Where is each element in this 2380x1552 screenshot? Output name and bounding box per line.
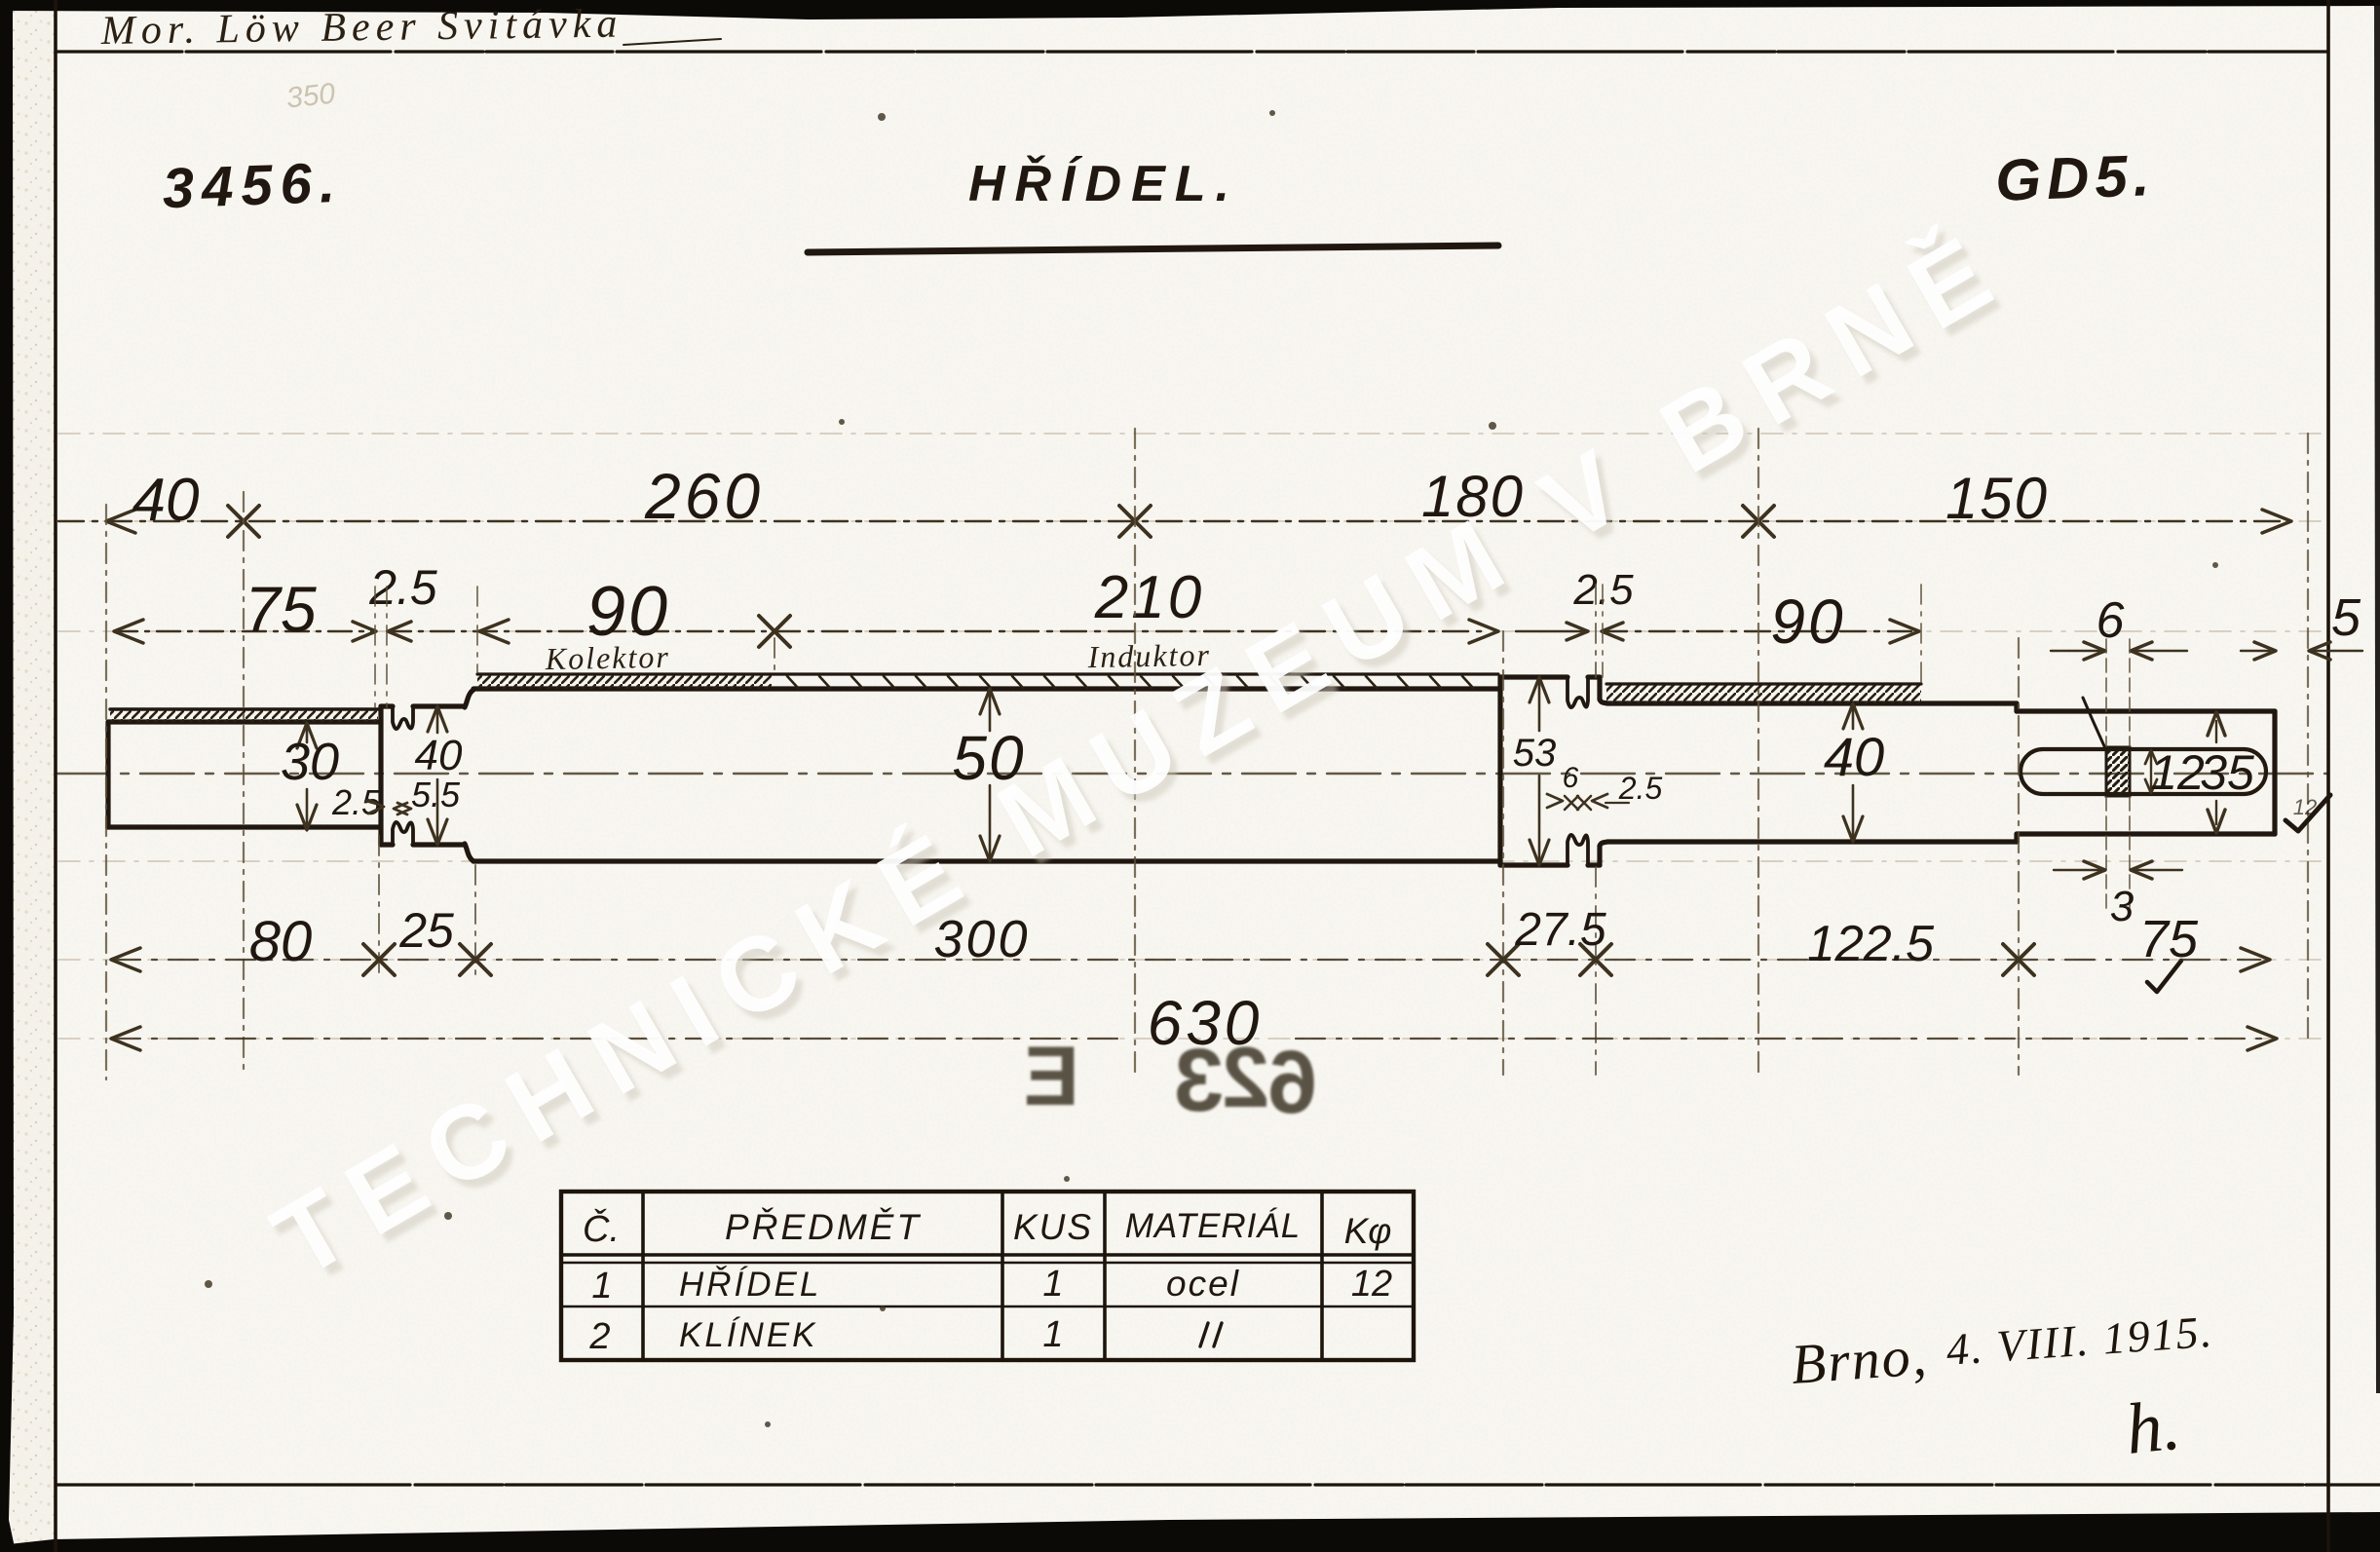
svg-text:30: 30	[281, 733, 339, 791]
svg-text:ocel: ocel	[1166, 1264, 1240, 1304]
svg-text:E: E	[1024, 1030, 1079, 1123]
svg-text:MATERIÁL: MATERIÁL	[1125, 1207, 1301, 1245]
svg-text:40: 40	[1824, 726, 1884, 787]
svg-text:1: 1	[1042, 1264, 1063, 1305]
svg-text:HŘÍDEL: HŘÍDEL	[679, 1266, 821, 1304]
svg-text:6: 6	[2097, 592, 2125, 649]
svg-text:2: 2	[588, 1316, 610, 1357]
svg-text:2.5: 2.5	[1618, 771, 1663, 806]
svg-text:40: 40	[415, 732, 463, 779]
svg-text:122.5: 122.5	[1807, 916, 1935, 972]
svg-text:1: 1	[591, 1266, 612, 1306]
svg-text:6: 6	[1563, 762, 1579, 794]
svg-text:80: 80	[249, 910, 313, 973]
svg-text:h.: h.	[2122, 1385, 2184, 1470]
svg-text:Kolektor: Kolektor	[545, 639, 671, 676]
svg-text:Kφ: Kφ	[1344, 1211, 1392, 1251]
svg-text:5: 5	[2331, 588, 2361, 647]
svg-text:3456.: 3456.	[162, 151, 344, 220]
svg-text:27.5: 27.5	[1514, 904, 1606, 956]
svg-text:40: 40	[132, 467, 200, 534]
svg-text:12: 12	[2150, 745, 2205, 800]
svg-text:1: 1	[1042, 1314, 1063, 1355]
svg-text:Č.: Č.	[583, 1207, 620, 1250]
svg-text:HŘÍDEL.: HŘÍDEL.	[968, 155, 1239, 212]
svg-text:53: 53	[1513, 732, 1557, 775]
svg-text:350: 350	[284, 77, 337, 114]
svg-text:75: 75	[2139, 910, 2199, 968]
svg-text:KLÍNEK: KLÍNEK	[679, 1316, 818, 1354]
svg-text:12: 12	[1351, 1264, 1392, 1305]
svg-text:260: 260	[644, 460, 764, 532]
svg-text:GD5.: GD5.	[1994, 142, 2156, 213]
svg-text:PŘEDMĚT: PŘEDMĚT	[725, 1207, 922, 1247]
svg-text:2: 2	[1222, 1029, 1269, 1125]
svg-text:6: 6	[1267, 1033, 1317, 1132]
svg-text:Mor. Löw Beer Svitávka: Mor. Löw Beer Svitávka	[99, 2, 623, 54]
svg-text:90: 90	[1770, 587, 1845, 657]
svg-text:150: 150	[1946, 466, 2049, 531]
svg-text:5.5: 5.5	[411, 775, 461, 814]
svg-text:35: 35	[2200, 745, 2254, 800]
svg-text:210: 210	[1094, 564, 1204, 631]
svg-text:Brno,: Brno,	[1789, 1323, 1930, 1396]
svg-text:KUS: KUS	[1013, 1207, 1093, 1247]
svg-text:12: 12	[2293, 795, 2317, 819]
svg-text:3: 3	[2110, 883, 2134, 930]
svg-text:75: 75	[245, 573, 317, 645]
svg-text:3: 3	[1174, 1031, 1224, 1130]
svg-text:2.5: 2.5	[368, 560, 437, 615]
svg-text:25: 25	[398, 903, 454, 958]
